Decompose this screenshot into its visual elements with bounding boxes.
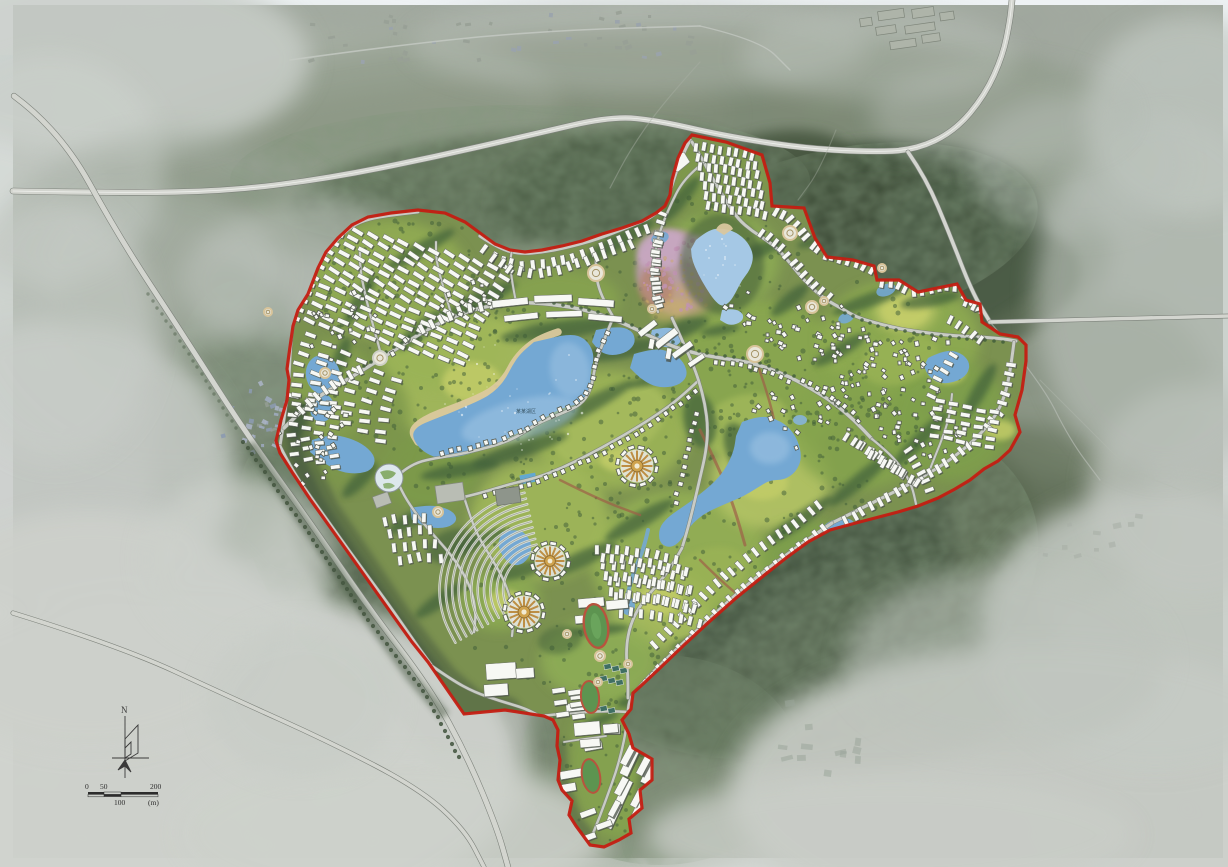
svg-text:200: 200 <box>150 782 162 791</box>
svg-text:0: 0 <box>85 782 89 791</box>
svg-text:100: 100 <box>114 798 126 807</box>
svg-text:N: N <box>121 705 128 715</box>
svg-text:(m): (m) <box>148 798 159 807</box>
svg-text:某某湖区: 某某湖区 <box>516 408 536 415</box>
svg-text:50: 50 <box>100 782 108 791</box>
